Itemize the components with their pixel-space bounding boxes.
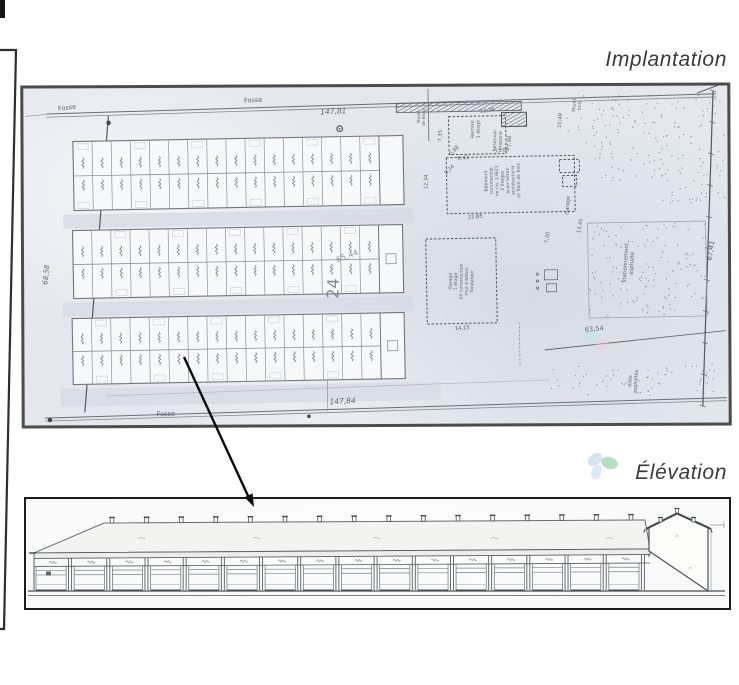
svg-text:Garage1 étageen constructionmu: Garage1 étageen constructionmur à bétonf…	[447, 263, 475, 299]
svg-text:Muretbois: Muretbois	[571, 98, 583, 112]
svg-text:13,45: 13,45	[576, 218, 585, 234]
svg-text:Remise1 étage: Remise1 étage	[470, 120, 482, 139]
svg-text:Bâtimentcommercialno civ. 1362: Bâtimentcommercialno civ. 136212 étagesa…	[482, 162, 522, 198]
page-frame-partial	[0, 0, 16, 629]
logo-petal-green	[600, 455, 620, 472]
document-page: Implantation Élévation FosseFosse147,81F…	[0, 0, 739, 685]
svg-text:68,58: 68,58	[41, 264, 51, 285]
elevation-canvas	[26, 499, 729, 608]
svg-text:8,34: 8,34	[444, 163, 457, 176]
svg-text:Fosse: Fosse	[57, 103, 76, 113]
site-plan-canvas: FosseFosse147,81Fosse147,8468,5867,4163,…	[23, 85, 728, 425]
svg-text:63,54: 63,54	[585, 324, 604, 334]
svg-text:7,35: 7,35	[438, 130, 444, 142]
svg-text:147,84: 147,84	[329, 396, 356, 406]
svg-text:7,30: 7,30	[544, 231, 552, 243]
svg-text:7,88: 7,88	[507, 136, 513, 148]
site-plan-drawing: FosseFosse147,81Fosse147,8468,5867,4163,…	[20, 82, 731, 428]
svg-text:13,84: 13,84	[494, 147, 510, 155]
svg-text:67,41: 67,41	[705, 240, 716, 261]
svg-text:14,15: 14,15	[455, 325, 470, 332]
svg-text:12,36: 12,36	[480, 107, 495, 115]
svg-text:22,85: 22,85	[468, 214, 483, 221]
svg-text:Fosse: Fosse	[244, 96, 263, 105]
elevation-title: Élévation	[537, 461, 727, 485]
svg-text:24: 24	[323, 278, 343, 299]
svg-text:Fosse: Fosse	[157, 410, 176, 419]
elevation-drawing	[24, 497, 731, 610]
svg-text:12,34: 12,34	[424, 174, 430, 190]
implantation-title: Implantation	[537, 48, 727, 72]
watermark-logo	[586, 451, 624, 487]
svg-text:10,49: 10,49	[557, 113, 564, 128]
svg-text:Garage: Garage	[564, 196, 571, 215]
svg-text:Alléeasphaltée: Alléeasphaltée	[626, 369, 640, 393]
svg-text:Stationnementasphalté: Stationnementasphalté	[622, 243, 637, 284]
svg-text:8,41: 8,41	[457, 155, 469, 162]
svg-text:147,81: 147,81	[320, 106, 347, 116]
